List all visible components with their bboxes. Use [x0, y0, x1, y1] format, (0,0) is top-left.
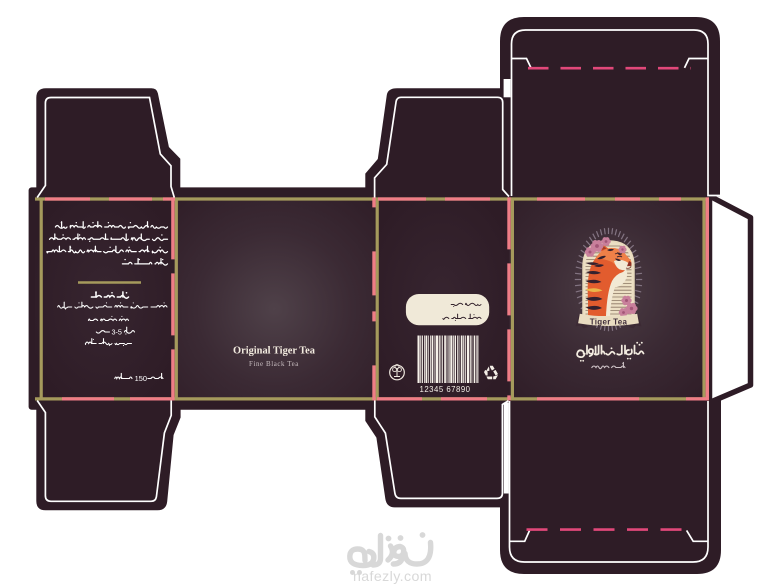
svg-text:nafezly.com: nafezly.com [353, 569, 432, 585]
svg-text:3-5: 3-5 [112, 328, 122, 337]
svg-text:Tiger Tea: Tiger Tea [590, 318, 628, 327]
svg-text:12345 67890: 12345 67890 [419, 385, 470, 394]
svg-text:Original Tiger Tea: Original Tiger Tea [233, 346, 316, 357]
svg-text:150: 150 [135, 374, 147, 383]
svg-text:Fine Black Tea: Fine Black Tea [249, 361, 299, 368]
